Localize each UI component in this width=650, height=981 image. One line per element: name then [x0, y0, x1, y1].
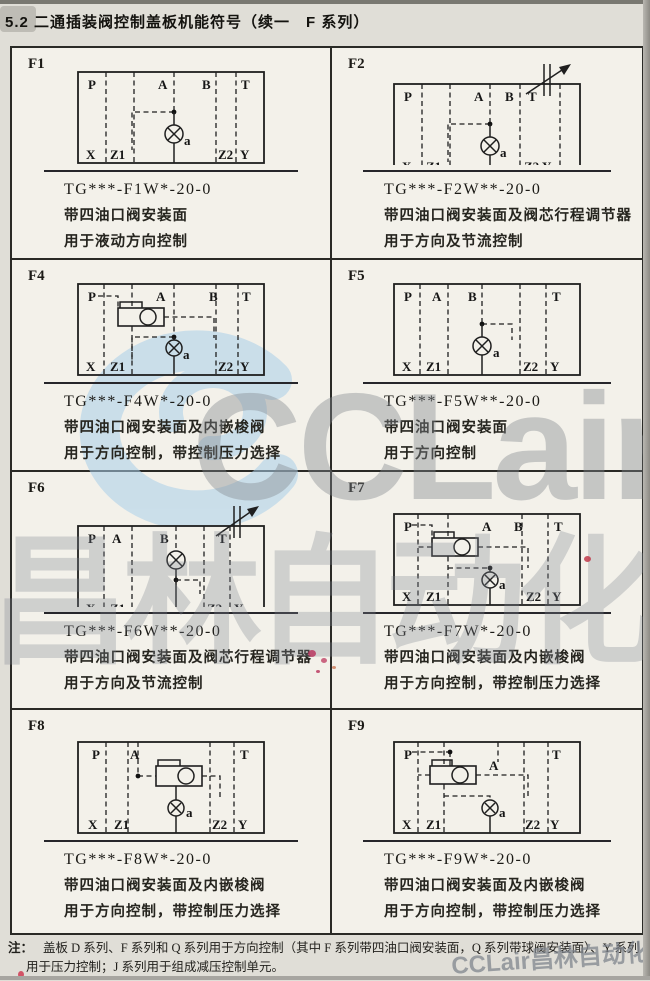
divider	[44, 170, 298, 172]
divider	[363, 382, 611, 384]
port-label-a: A	[482, 519, 492, 534]
port-label-x: X	[402, 817, 412, 832]
divider	[363, 840, 611, 842]
port-label-z2: Z2	[207, 601, 222, 607]
cell-f9: F9	[332, 710, 642, 933]
divider	[44, 612, 298, 614]
red-ink-marks	[308, 650, 316, 657]
shuttle-valve-icon	[118, 302, 164, 326]
red-ink-mark	[584, 556, 591, 562]
hydraulic-diagram-f4: P A B T X Z1 a Z2 Y	[76, 282, 266, 377]
port-label-z1: Z1	[114, 817, 129, 832]
port-label-y: Y	[550, 817, 560, 832]
pilot-valve-icon	[166, 340, 182, 356]
cell-f7: F7 P	[332, 472, 642, 710]
divider	[44, 382, 298, 384]
port-label-t: T	[240, 747, 249, 762]
divider	[363, 612, 611, 614]
port-label-b: B	[505, 89, 514, 104]
port-label-a2: a	[499, 577, 506, 592]
hydraulic-diagram-f8: P A T X Z1 a Z2 Y	[76, 740, 266, 835]
description-line: 带四油口阀安装面及阀芯行程调节器	[64, 646, 330, 667]
port-label-y: Y	[234, 601, 244, 607]
description-line: 用于液动方向控制	[64, 230, 330, 251]
port-label-z2: Z2	[523, 359, 538, 374]
shuttle-valve-icon	[432, 532, 478, 556]
port-label-a2: a	[186, 805, 193, 820]
pilot-valve-icon	[482, 800, 498, 816]
description-line: 带四油口阀安装面及内嵌梭阀	[384, 646, 642, 667]
port-label-p: P	[404, 289, 412, 304]
port-label-z2: Z2	[525, 817, 540, 832]
hydraulic-diagram-f6: P A B T X Z1 a Z2 Y	[76, 488, 266, 607]
description-line: 带四油口阀安装面及内嵌梭阀	[64, 416, 330, 437]
hydraulic-diagram-f7: P A B T X Z1 a Z2 Y	[392, 512, 582, 607]
description-line: 用于方向及节流控制	[64, 672, 330, 693]
port-label-z1: Z1	[426, 589, 441, 604]
port-label-a: A	[158, 77, 168, 92]
cell-id-label: F9	[348, 718, 365, 735]
model-code: TG***-F1W*-20-0	[64, 181, 330, 199]
port-label-b: B	[514, 519, 523, 534]
port-label-t: T	[218, 531, 227, 546]
pilot-valve-icon	[165, 125, 183, 143]
model-code: TG***-F6W**-20-0	[64, 623, 330, 641]
port-label-p: P	[88, 531, 96, 546]
scan-edge-right	[643, 0, 650, 980]
port-label-b: B	[468, 289, 477, 304]
port-label-a2: a	[184, 133, 191, 148]
shuttle-valve-icon	[156, 760, 202, 786]
port-label-a: A	[474, 89, 484, 104]
pilot-valve-icon	[167, 551, 185, 569]
port-label-x: X	[86, 147, 96, 162]
port-label-z2: Z2	[218, 147, 233, 162]
port-label-y: Y	[238, 817, 248, 832]
page-title: 5.2 二通插装阀控制盖板机能符号（续一 F 系列）	[5, 11, 369, 32]
port-label-b: B	[202, 77, 211, 92]
port-label-p: P	[404, 519, 412, 534]
port-label-y: Y	[552, 589, 562, 604]
port-label-y: Y	[550, 359, 560, 374]
cell-id-label: F7	[348, 480, 365, 497]
description-line: 用于方向控制	[384, 442, 642, 463]
scan-edge-bottom	[0, 976, 650, 980]
model-code: TG***-F9W*-20-0	[384, 851, 642, 869]
port-label-t: T	[554, 519, 563, 534]
port-label-z1: Z1	[426, 817, 441, 832]
hydraulic-diagram-f9: P A T X Z1 a Z2 Y	[392, 740, 582, 835]
description-line: 用于方向控制，带控制压力选择	[64, 442, 330, 463]
footnote-label: 注：	[8, 941, 33, 955]
footnote-line2: 用于压力控制；J 系列用于组成减压控制单元。	[8, 958, 640, 977]
port-label-z1: Z1	[426, 359, 441, 374]
port-label-a2: a	[493, 345, 500, 360]
port-label-x: X	[88, 817, 98, 832]
description-line: 用于方向控制，带控制压力选择	[64, 900, 330, 921]
divider	[44, 840, 298, 842]
footnote: 注：盖板 D 系列、F 系列和 Q 系列用于方向控制（其中 F 系列带四油口阀安…	[8, 939, 640, 977]
model-code: TG***-F8W*-20-0	[64, 851, 330, 869]
cell-id-label: F2	[348, 56, 365, 73]
pilot-valve-icon	[168, 800, 184, 816]
pilot-valve-icon	[482, 572, 498, 588]
port-label-p: P	[92, 747, 100, 762]
pilot-valve-icon	[473, 337, 491, 355]
scan-edge-top	[0, 0, 650, 4]
port-label-y: Y	[240, 147, 250, 162]
description-line: 用于方向及节流控制	[384, 230, 642, 251]
cell-id-label: F6	[28, 480, 45, 497]
footnote-line1: 注：盖板 D 系列、F 系列和 Q 系列用于方向控制（其中 F 系列带四油口阀安…	[8, 939, 640, 958]
port-label-t: T	[552, 747, 561, 762]
port-label-x: X	[402, 159, 412, 165]
cell-id-label: F8	[28, 718, 45, 735]
port-label-a2: a	[183, 347, 190, 362]
port-label-z2: Z2	[218, 359, 233, 374]
port-label-a: A	[112, 531, 122, 546]
cell-id-label: F1	[28, 56, 45, 73]
port-label-x: X	[86, 359, 96, 374]
port-label-a: A	[156, 289, 166, 304]
hydraulic-diagram-f5: P A B T X Z1 a Z2 Y	[392, 282, 582, 377]
port-label-b: B	[209, 289, 218, 304]
description-line: 用于方向控制，带控制压力选择	[384, 672, 642, 693]
description-line: 带四油口阀安装面	[384, 416, 642, 437]
port-label-x: X	[402, 359, 412, 374]
port-label-z1: Z1	[110, 147, 125, 162]
divider	[363, 170, 611, 172]
model-code: TG***-F2W**-20-0	[384, 181, 642, 199]
port-label-y: Y	[542, 159, 552, 165]
port-label-t: T	[241, 77, 250, 92]
port-label-p: P	[88, 289, 96, 304]
port-label-z2: Z2	[526, 589, 541, 604]
cell-f5: F5 P A B T X Z1 a	[332, 260, 642, 472]
port-label-z2: Z2	[524, 159, 539, 165]
port-label-z2: Z2	[212, 817, 227, 832]
cell-id-label: F4	[28, 268, 45, 285]
description-line: 带四油口阀安装面	[64, 204, 330, 225]
cell-id-label: F5	[348, 268, 365, 285]
port-label-a2: a	[499, 805, 506, 820]
model-code: TG***-F5W**-20-0	[384, 393, 642, 411]
model-code: TG***-F4W*-20-0	[64, 393, 330, 411]
hydraulic-diagram-f1: P A B T X Z1 a Z2 Y	[76, 70, 266, 165]
port-label-a2: a	[180, 601, 187, 607]
port-label-t: T	[242, 289, 251, 304]
shuttle-valve-icon	[430, 760, 476, 784]
description-line: 用于方向控制，带控制压力选择	[384, 900, 642, 921]
port-label-p: P	[88, 77, 96, 92]
port-label-x: X	[86, 601, 96, 607]
port-label-a: A	[489, 758, 499, 773]
pilot-valve-icon	[481, 137, 499, 155]
port-label-z1: Z1	[110, 359, 125, 374]
port-label-a: A	[432, 289, 442, 304]
cell-f1: F1 P A B T X Z1 a	[12, 48, 332, 260]
port-label-a: A	[130, 747, 140, 762]
description-line: 带四油口阀安装面及阀芯行程调节器	[384, 204, 642, 225]
model-code: TG***-F7W*-20-0	[384, 623, 642, 641]
port-label-b: B	[160, 531, 169, 546]
port-label-z1: Z1	[110, 601, 125, 607]
hydraulic-diagram-f2: P A B T X Z1 a Z2 Y	[392, 46, 582, 165]
port-label-t: T	[528, 89, 537, 104]
port-label-x: X	[402, 589, 412, 604]
cell-f8: F8 P	[12, 710, 332, 933]
port-label-p: P	[404, 747, 412, 762]
description-line: 带四油口阀安装面及内嵌梭阀	[64, 874, 330, 895]
port-label-t: T	[552, 289, 561, 304]
port-label-z1: Z1	[426, 159, 441, 165]
description-line: 带四油口阀安装面及内嵌梭阀	[384, 874, 642, 895]
port-label-p: P	[404, 89, 412, 104]
port-label-a2: a	[500, 145, 507, 160]
cell-f2: F2 P A	[332, 48, 642, 260]
port-label-y: Y	[240, 359, 250, 374]
